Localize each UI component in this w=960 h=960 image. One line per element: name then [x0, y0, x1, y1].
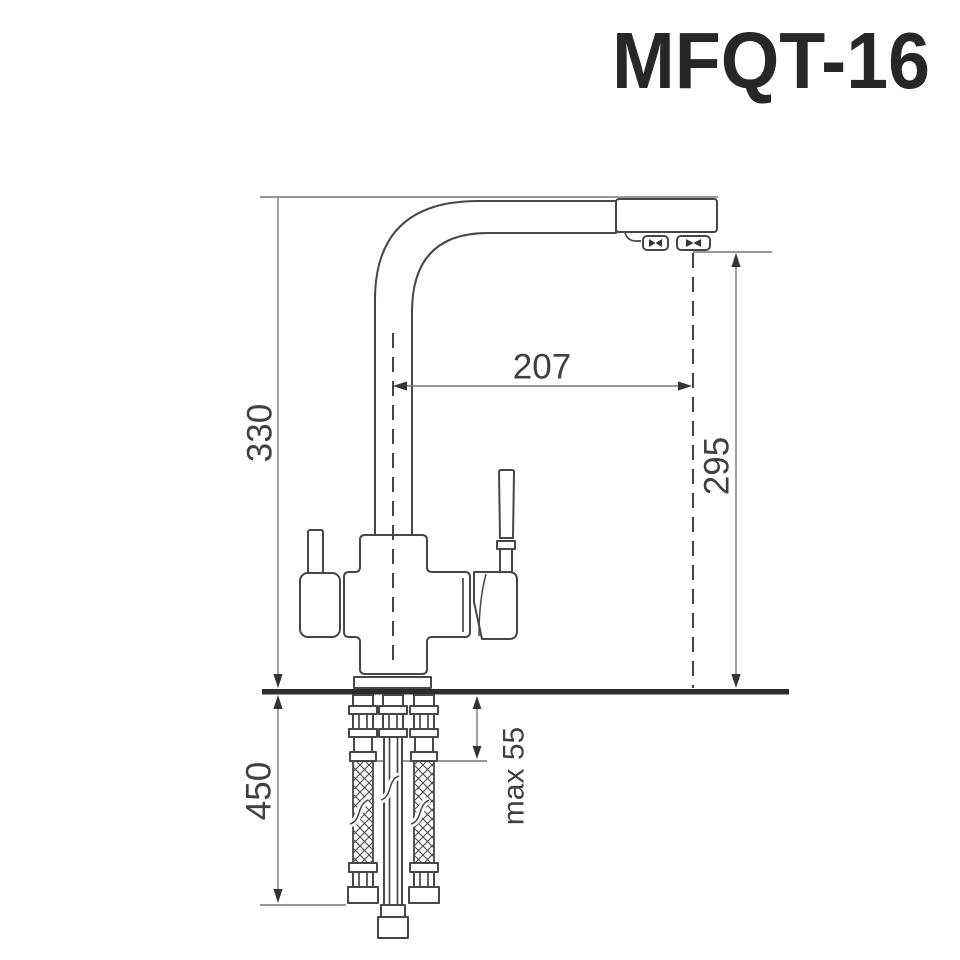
left-handle	[300, 530, 340, 637]
right-handle-stem	[500, 549, 512, 572]
aerator-right-icon	[677, 236, 710, 250]
counter-line	[262, 689, 789, 695]
left-handle-lever	[308, 530, 323, 573]
model-title: MFQT-16	[612, 16, 930, 105]
mixer-cross-body	[344, 535, 470, 674]
center-mounting-stud	[378, 695, 408, 938]
right-supply-hose	[409, 695, 439, 903]
spout-head	[616, 199, 717, 232]
dimension-295: 295	[697, 253, 740, 688]
dim-330-label: 330	[240, 404, 279, 462]
left-supply-hose	[348, 695, 378, 903]
left-washer	[350, 752, 376, 761]
right-handle-lever	[499, 470, 514, 538]
right-hose-nut	[409, 887, 439, 903]
dim-295-label: 295	[697, 437, 736, 495]
center-stud-nut	[378, 917, 408, 938]
faucet-body	[300, 199, 717, 688]
dim-max55-label: max 55	[498, 727, 531, 825]
dimension-450: 450	[239, 695, 282, 903]
right-handle-collar	[497, 541, 515, 549]
dim-450-label: 450	[239, 762, 278, 820]
spout-head-lip	[616, 232, 641, 241]
dim-207-label: 207	[513, 347, 571, 386]
left-hose-nut	[348, 887, 378, 903]
technical-drawing: MFQT-16	[0, 0, 960, 960]
base-flange	[354, 677, 431, 688]
aerator-left-icon	[643, 236, 668, 250]
right-washer	[411, 752, 437, 761]
right-handle	[474, 470, 517, 639]
mounting-hardware	[348, 695, 439, 938]
spout-tube	[375, 201, 616, 535]
left-handle-body	[300, 573, 340, 637]
dimension-207: 207	[393, 347, 692, 390]
dimension-330: 330	[240, 198, 282, 688]
faucet-diagram: MFQT-16	[0, 0, 960, 960]
